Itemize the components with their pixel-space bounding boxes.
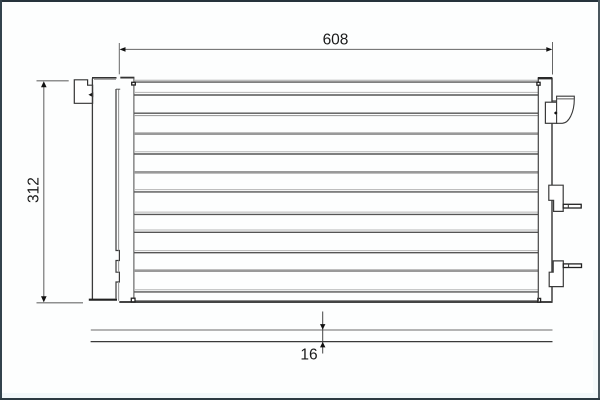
svg-text:16: 16 <box>300 347 317 364</box>
svg-text:312: 312 <box>26 177 43 203</box>
svg-text:608: 608 <box>323 32 349 49</box>
